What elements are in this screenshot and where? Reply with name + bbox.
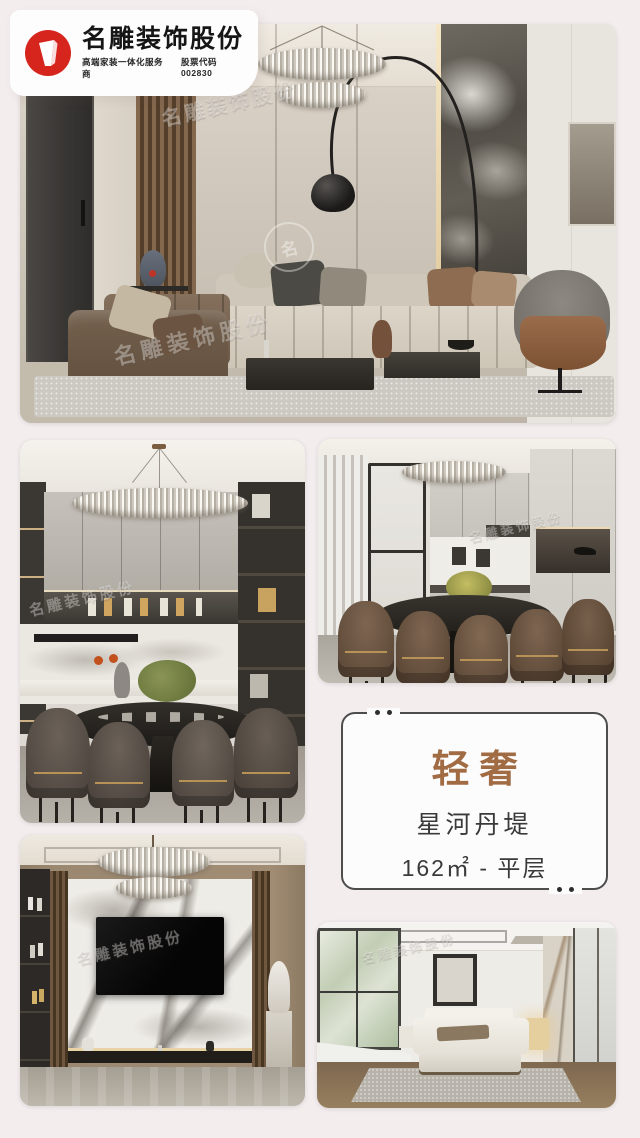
throw-pillow <box>471 270 518 310</box>
dining-chair <box>396 611 450 683</box>
dining-chair <box>26 708 90 798</box>
lounge-chair-seat <box>520 316 606 370</box>
seated-figurine <box>268 961 290 1013</box>
crystal-chandelier-ring <box>98 847 210 877</box>
photo-tv-wall: 名雕装饰股份 <box>20 835 305 1106</box>
card-dot-accent <box>549 885 582 894</box>
dining-chair <box>172 720 234 806</box>
table-sculpture <box>372 320 392 358</box>
bed-end-bench <box>419 1052 521 1072</box>
coffee-table <box>246 358 374 390</box>
sculpture-pedestal <box>266 1011 292 1069</box>
display-cabinet <box>20 869 50 1069</box>
lounge-chair-base <box>558 368 562 392</box>
table-figurine <box>114 662 130 698</box>
crystal-chandelier-ring <box>116 877 192 899</box>
floor <box>20 1067 305 1106</box>
floating-shelf <box>34 634 138 642</box>
bedroom-rug <box>351 1068 581 1102</box>
head-sculpture <box>140 250 166 288</box>
card-dot-accent <box>367 708 400 717</box>
photo-dining-kitchen: 名雕装饰股份 <box>318 439 616 683</box>
area-and-layout: 162㎡ - 平层 <box>343 849 606 883</box>
brand-name: 名雕装饰股份 <box>82 26 248 54</box>
brand-stock-code: 股票代码 002830 <box>181 56 248 80</box>
media-console <box>68 1051 252 1063</box>
project-name: 星河丹堤 <box>343 805 606 841</box>
wood-slat-panel <box>50 871 68 1067</box>
dining-chair <box>562 599 614 675</box>
project-info-card: 轻奢 星河丹堤 162㎡ - 平层 <box>341 712 608 890</box>
brand-logo-icon <box>24 29 72 77</box>
dining-chair <box>454 615 508 683</box>
dining-chair <box>234 708 298 798</box>
framed-artwork <box>433 954 477 1006</box>
brand-logo-card: 名雕装饰股份 高端家装一体化服务商 股票代码 002830 <box>10 10 258 96</box>
coffee-table <box>384 352 480 378</box>
bed-throw <box>437 1025 490 1042</box>
photo-bedroom: 名雕装饰股份 <box>317 922 616 1108</box>
dining-chair <box>338 601 394 677</box>
dining-chair <box>510 609 564 681</box>
crystal-chandelier-ring <box>402 461 506 483</box>
chandelier-cable <box>159 448 160 492</box>
crystal-chandelier-ring <box>258 48 386 80</box>
brand-subline: 高端家装一体化服务商 股票代码 002830 <box>82 56 248 80</box>
dining-chair <box>88 722 150 808</box>
design-style-label: 轻奢 <box>343 738 606 793</box>
crystal-chandelier-ring <box>72 488 248 518</box>
arc-lamp-shade <box>311 174 355 212</box>
orange-decor-dots <box>94 656 103 665</box>
decor-bowl <box>448 340 474 350</box>
brand-text-block: 名雕装饰股份 高端家装一体化服务商 股票代码 002830 <box>82 26 248 81</box>
greenery-centerpiece <box>138 660 196 702</box>
brand-tagline: 高端家装一体化服务商 <box>82 56 168 80</box>
photo-dining-room: 名雕装饰股份 <box>20 440 305 823</box>
lit-counter-niche <box>536 527 610 573</box>
poster: 名雕装饰股份 名 名雕装饰股份 名雕装饰股份 高端家装一体化服务商 股票代码 0… <box>0 0 640 1138</box>
throw-pillow <box>319 266 368 309</box>
